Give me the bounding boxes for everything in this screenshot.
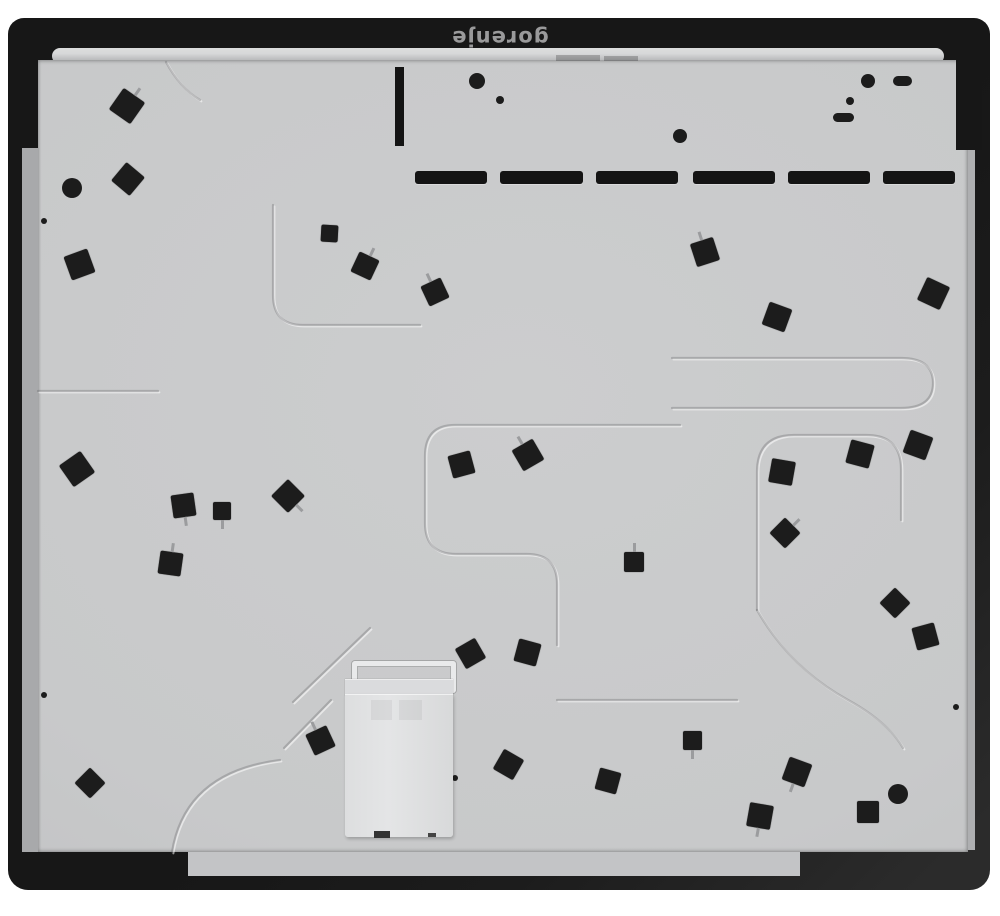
panel-edge-tab [556, 55, 600, 61]
foam-pad [305, 725, 336, 756]
foam-pad [213, 502, 231, 520]
screw-dot [41, 692, 47, 698]
pad-tab [183, 516, 187, 525]
vent-slot [500, 171, 583, 184]
foam-pad [768, 458, 796, 486]
foam-pad [454, 637, 485, 668]
vent-slot [415, 171, 487, 184]
foam-pad [513, 638, 541, 666]
screw-dot [62, 178, 82, 198]
vent-slot [693, 171, 775, 184]
foam-pad [845, 439, 874, 468]
slot-pill [893, 76, 912, 86]
pad-tab [788, 783, 794, 792]
screw-dot [953, 704, 959, 710]
foam-pad [157, 550, 183, 576]
foam-pad [63, 248, 95, 280]
pad-tab [691, 750, 694, 759]
vent-slot [596, 171, 678, 184]
connection-box-emboss-mark [371, 700, 392, 720]
pad-tab [310, 721, 317, 730]
foam-pad [879, 587, 910, 618]
screw-dot [41, 218, 47, 224]
foam-pad [911, 622, 939, 650]
screw-dot [888, 784, 908, 804]
foam-pad [170, 492, 196, 518]
pad-tab [633, 543, 636, 552]
foam-pad [447, 450, 475, 478]
foam-pad [109, 88, 145, 124]
foam-pad [595, 768, 622, 795]
foam-pad [746, 802, 774, 830]
screw-dot [673, 129, 687, 143]
pad-tab [295, 503, 303, 511]
panel-features-layer [0, 0, 1000, 916]
foam-pad [690, 237, 720, 267]
vent-bar [395, 67, 404, 146]
foam-pad [271, 479, 305, 513]
foam-pad [350, 251, 379, 280]
foam-pad [903, 430, 934, 461]
foam-pad [320, 224, 338, 242]
vent-slot [788, 171, 870, 184]
pad-tab [516, 436, 523, 445]
connection-box-cable-slot [374, 831, 390, 838]
foam-pad [74, 767, 105, 798]
foam-pad [492, 748, 523, 779]
connection-box-emboss-mark [399, 700, 422, 720]
foam-pad [624, 552, 644, 572]
foam-pad [111, 162, 145, 196]
connection-box-cable-slot [428, 833, 436, 837]
pad-tab [170, 542, 174, 551]
screw-dot [846, 97, 854, 105]
pad-tab [755, 828, 760, 837]
product-photo-cooktop-underside: gorenje [0, 0, 1000, 916]
foam-pad [683, 731, 702, 750]
pad-tab [133, 87, 141, 96]
foam-pad [762, 302, 793, 333]
pad-tab [697, 232, 703, 241]
foam-pad [512, 439, 545, 472]
foam-pad [420, 277, 449, 306]
screw-dot [469, 73, 485, 89]
foam-pad [857, 801, 879, 823]
vent-slot [883, 171, 955, 184]
screw-dot [861, 74, 875, 88]
pad-tab [221, 520, 224, 529]
pad-tab [368, 247, 375, 256]
pad-tab [792, 518, 800, 526]
screw-dot [496, 96, 504, 104]
foam-pad [782, 757, 813, 788]
foam-pad [59, 451, 95, 487]
slot-pill [833, 113, 854, 122]
foam-pad [769, 517, 800, 548]
pad-tab [425, 273, 432, 282]
foam-pad [916, 276, 949, 309]
panel-edge-tab [604, 56, 638, 61]
